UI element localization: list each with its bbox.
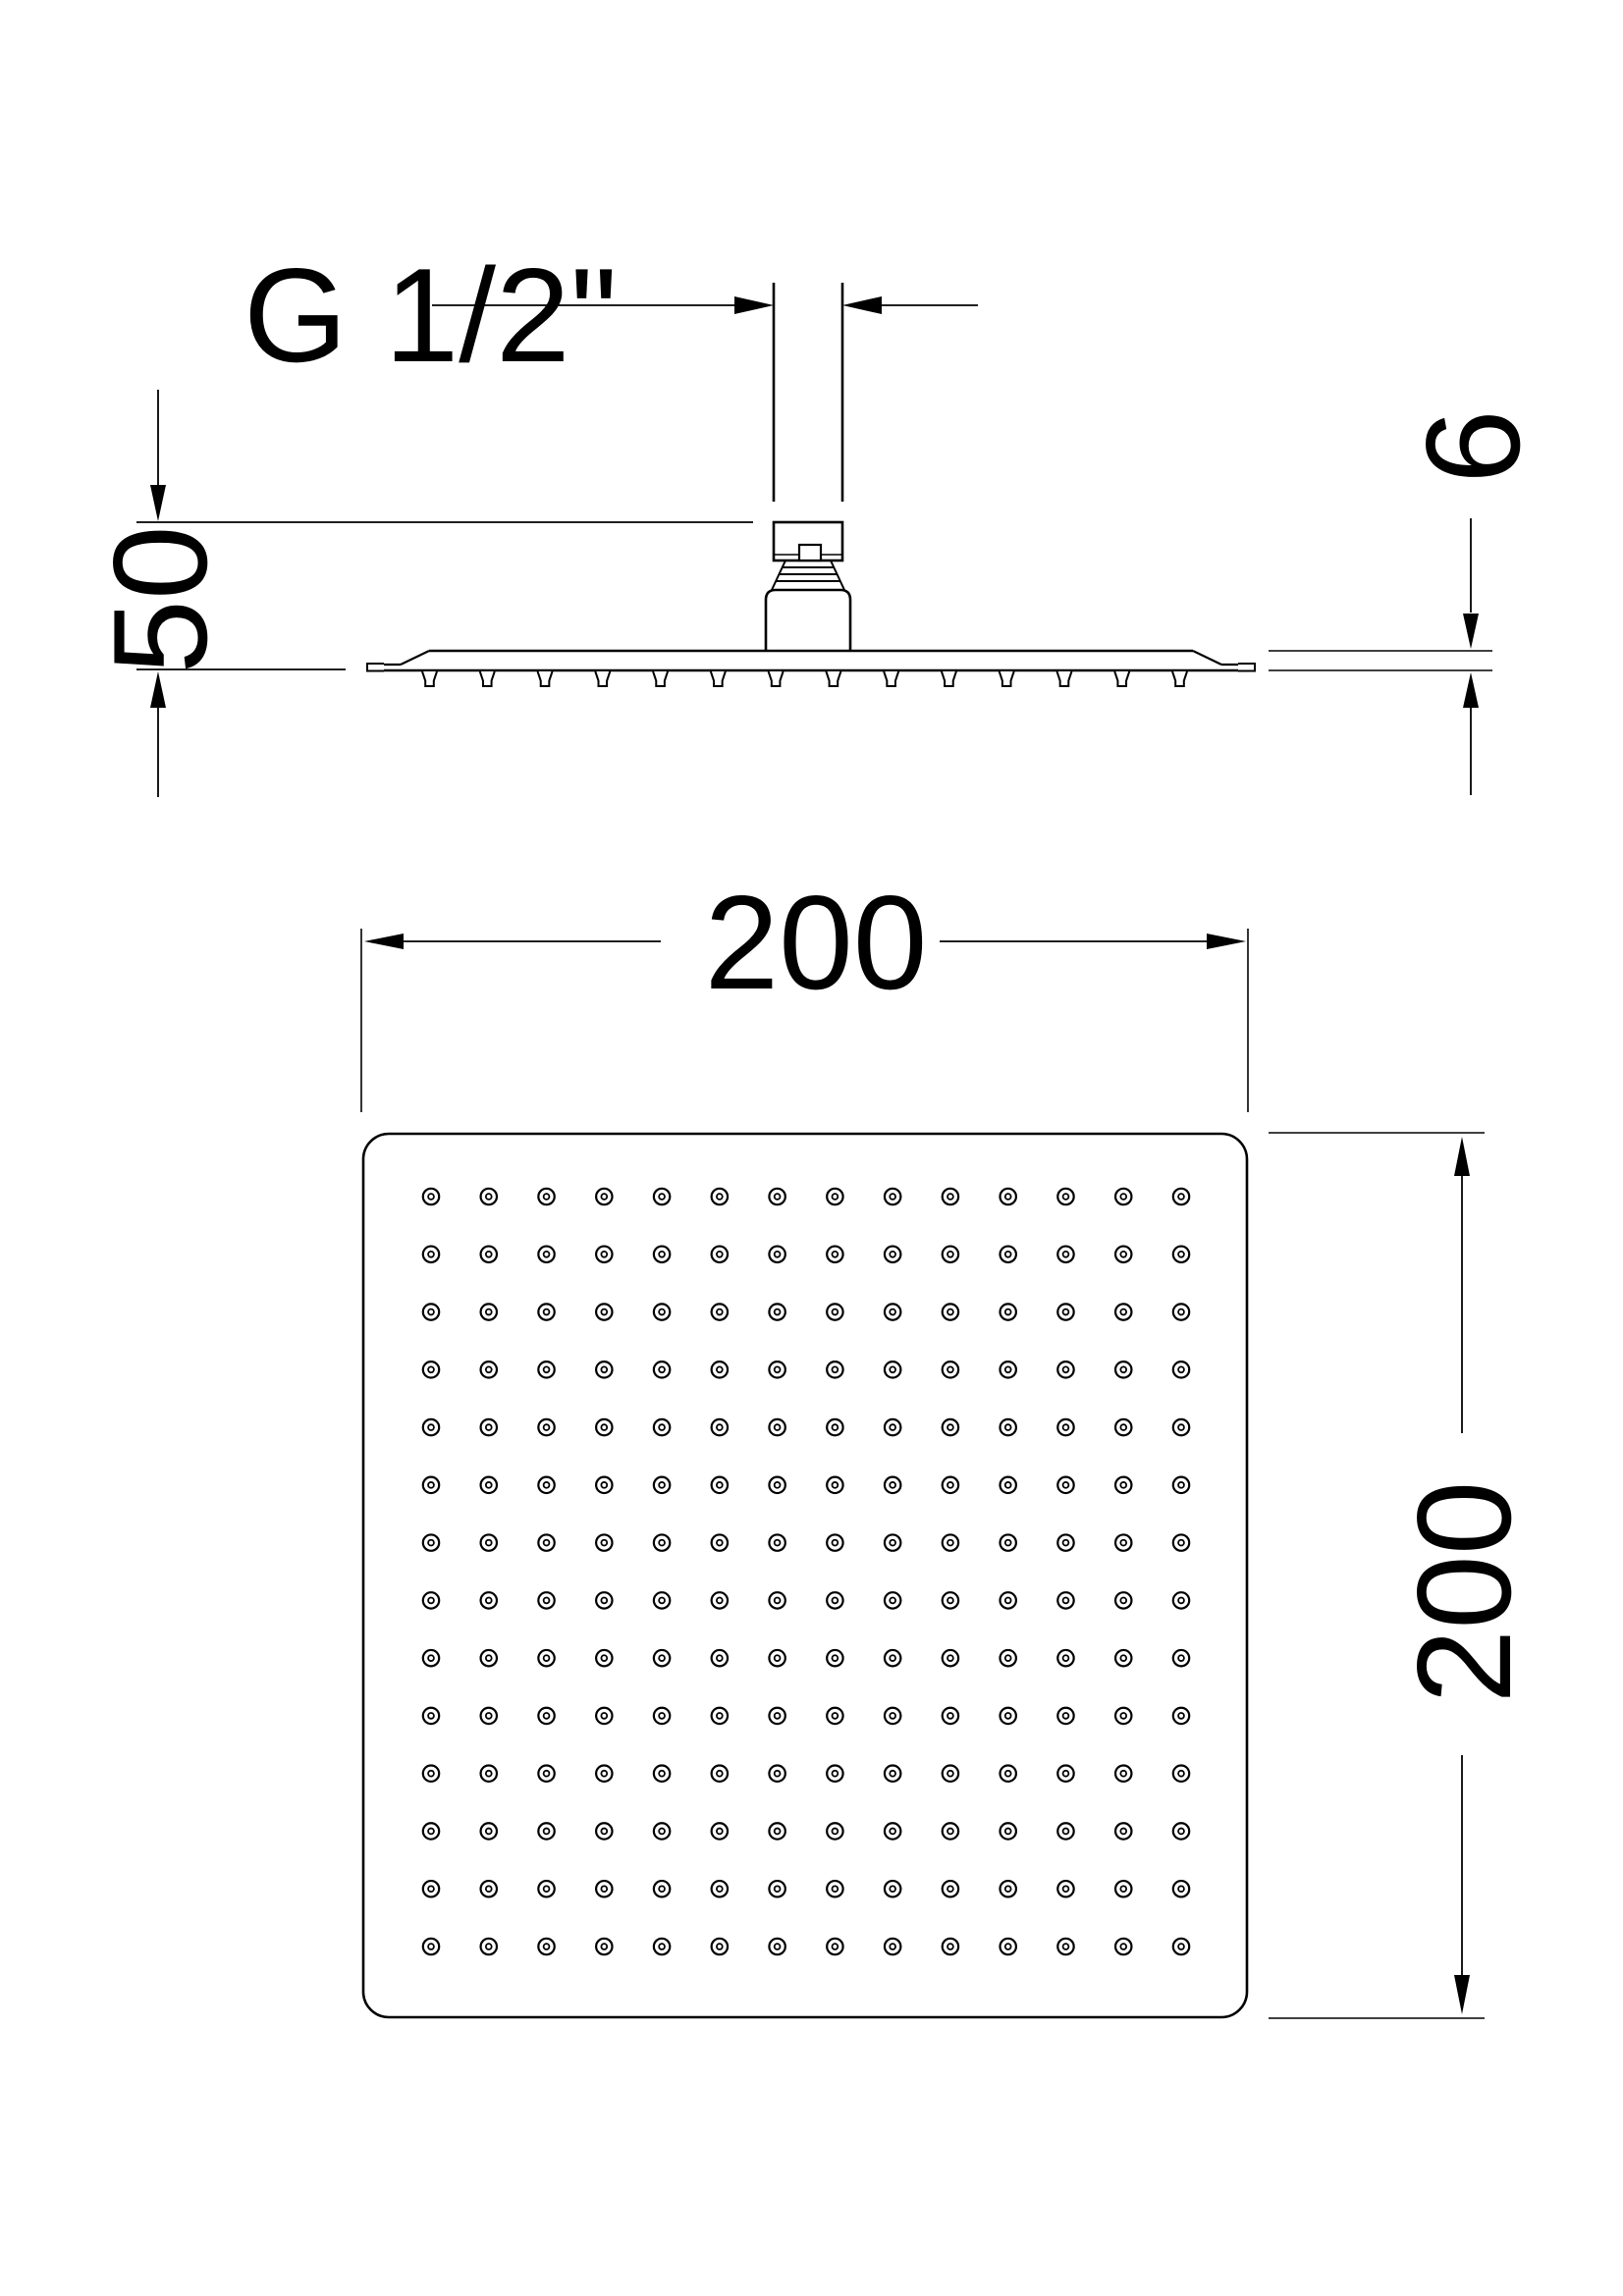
nozzle-profile (1000, 671, 1014, 686)
nozzle-profile (422, 671, 437, 686)
thickness-dimension-6: 6 (1269, 409, 1547, 795)
nozzle-row (422, 671, 1187, 686)
nut-notch (799, 545, 821, 561)
plate-profile (367, 651, 1255, 686)
side-view: G 1/2" 50 (85, 240, 1547, 797)
nozzle-profile (1056, 671, 1071, 686)
plate-left-lip (367, 664, 384, 671)
nozzle-profile (769, 671, 784, 686)
plan-view: 200 200 (361, 868, 1539, 2018)
depth-dimension-label: 200 (1389, 1481, 1539, 1704)
nozzle-profile (711, 671, 726, 686)
nozzle-profile (538, 671, 553, 686)
nozzle-profile (826, 671, 840, 686)
width-dimension-200: 200 (361, 868, 1248, 1112)
connector-taper (772, 561, 844, 590)
nozzle-profile (653, 671, 668, 686)
thread-size-label: G 1/2" (243, 240, 618, 390)
width-dimension-label: 200 (705, 868, 928, 1017)
nozzle-profile (942, 671, 956, 686)
height-dimension-50: 50 (85, 390, 753, 797)
nozzle-profile (1114, 671, 1129, 686)
thickness-dimension-label: 6 (1398, 409, 1547, 484)
nozzle-profile (884, 671, 898, 686)
depth-dimension-200: 200 (1269, 1133, 1539, 2018)
nozzle-profile (1172, 671, 1187, 686)
nozzle-profile (480, 671, 495, 686)
shower-head-technical-drawing: G 1/2" 50 (0, 0, 1623, 2296)
height-dimension-label: 50 (85, 525, 235, 673)
plate-right-lip (1238, 664, 1255, 671)
nozzle-profile (595, 671, 610, 686)
connector-body (766, 590, 850, 652)
